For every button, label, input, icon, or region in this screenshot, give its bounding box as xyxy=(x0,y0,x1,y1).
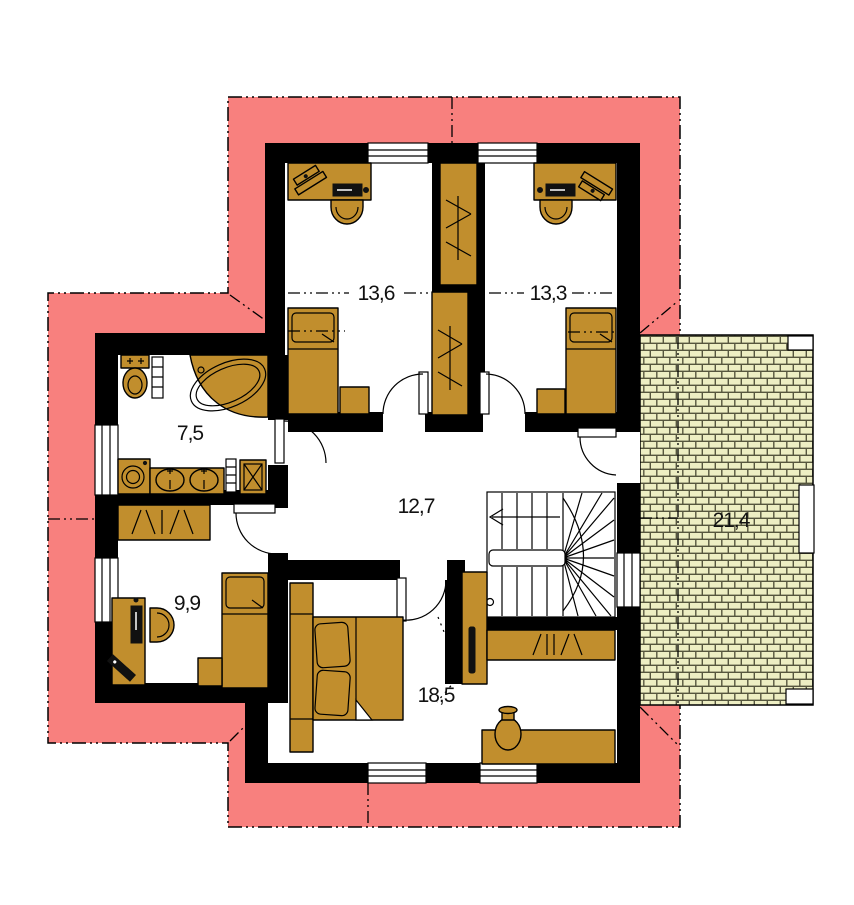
room-area-label: 13,3 xyxy=(530,282,567,305)
room-area-label: 13,6 xyxy=(358,282,395,305)
floor-plan-svg: 13,6 13,3 7,5 12,7 9,9 18,5 21,4 xyxy=(0,0,854,900)
single-bed-icon xyxy=(566,308,616,414)
single-bed-icon xyxy=(288,308,338,414)
double-bed-icon xyxy=(313,617,403,720)
wardrobe-icon xyxy=(118,505,210,540)
nightstand-icon xyxy=(198,658,222,686)
window-icon xyxy=(95,425,118,495)
terrace-opening xyxy=(786,689,813,704)
mouse-icon xyxy=(538,188,543,193)
floor-plan-canvas: 13,6 13,3 7,5 12,7 9,9 18,5 21,4 xyxy=(0,0,854,900)
nightstand-icon xyxy=(340,387,369,414)
single-bed-icon xyxy=(222,573,268,688)
nightstand-icon xyxy=(537,389,565,414)
room-area-label: 7,5 xyxy=(177,422,204,445)
shower-icon xyxy=(240,460,266,494)
double-sink-icon xyxy=(150,468,224,494)
room-area-label: 12,7 xyxy=(398,495,435,518)
bed-headboard xyxy=(290,583,313,752)
terrace-opening xyxy=(788,336,813,350)
tall-cabinet-icon xyxy=(462,572,487,684)
mouse-icon xyxy=(364,188,369,193)
radiator-icon xyxy=(226,459,236,492)
wardrobe-icon xyxy=(432,292,468,415)
staircase-icon xyxy=(487,492,616,617)
room-area-label: 21,4 xyxy=(713,509,751,532)
window-icon xyxy=(480,763,537,783)
window-icon xyxy=(617,553,640,607)
room-area-label: 18,5 xyxy=(418,684,455,707)
washing-machine-icon xyxy=(118,459,150,494)
radiator-icon xyxy=(152,357,163,398)
wardrobe-icon xyxy=(440,163,477,285)
window-icon xyxy=(368,143,428,163)
room-area-label: 9,9 xyxy=(174,592,201,615)
stair-handrail xyxy=(489,550,565,566)
toilet-icon xyxy=(121,355,149,398)
window-icon xyxy=(478,143,537,163)
window-icon xyxy=(368,763,426,783)
wardrobe-icon xyxy=(487,630,615,660)
terrace-opening xyxy=(799,485,814,553)
